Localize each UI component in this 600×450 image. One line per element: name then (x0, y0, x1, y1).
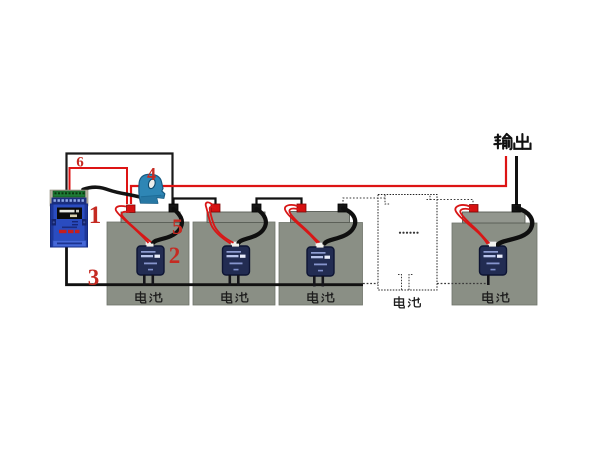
svg-text:4: 4 (147, 164, 156, 184)
svg-text:6: 6 (76, 155, 84, 171)
svg-text:3: 3 (88, 265, 100, 290)
svg-text:5: 5 (172, 214, 183, 239)
svg-text:1: 1 (89, 202, 102, 229)
svg-text:2: 2 (169, 243, 181, 268)
